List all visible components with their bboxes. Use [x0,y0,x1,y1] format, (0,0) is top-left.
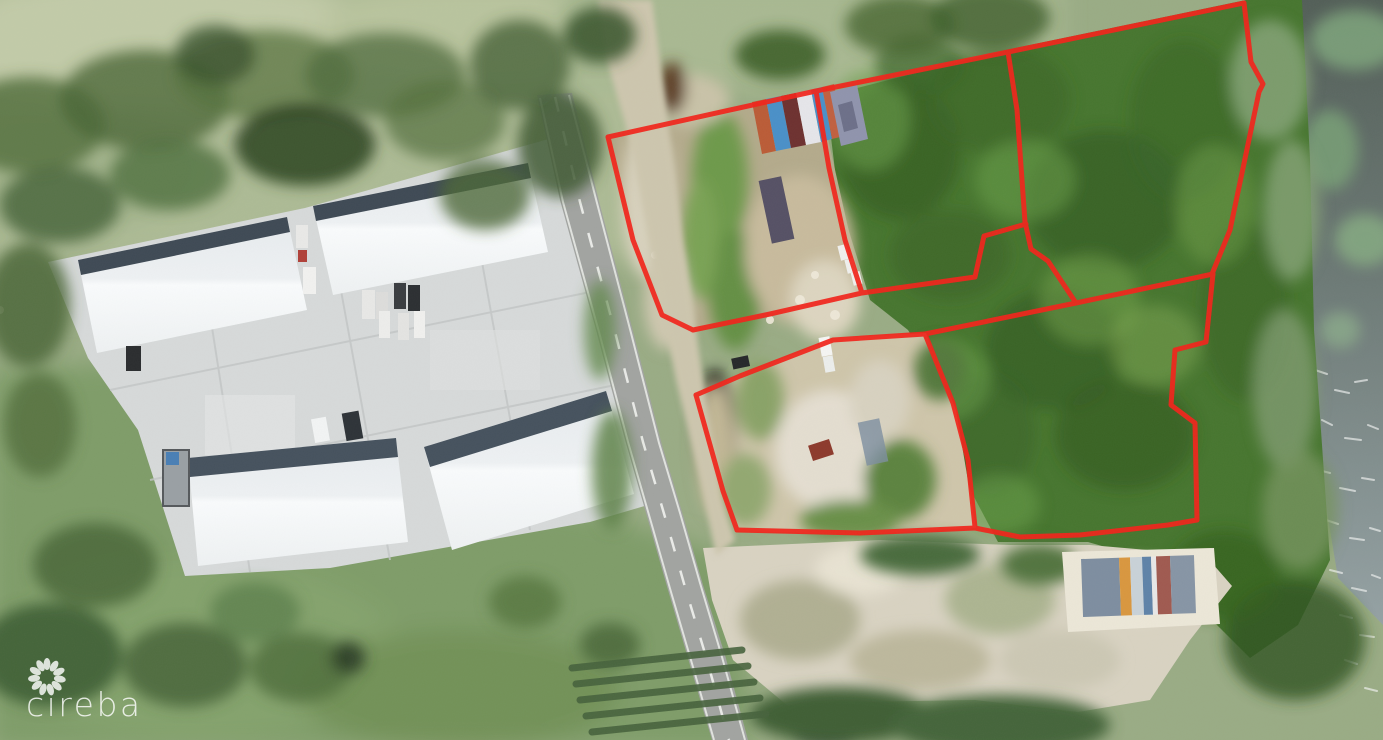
aerial-listing-photo: cireba [0,0,1383,740]
photo-grain-overlay [0,0,1383,740]
aerial-scene: cireba [0,0,1383,740]
